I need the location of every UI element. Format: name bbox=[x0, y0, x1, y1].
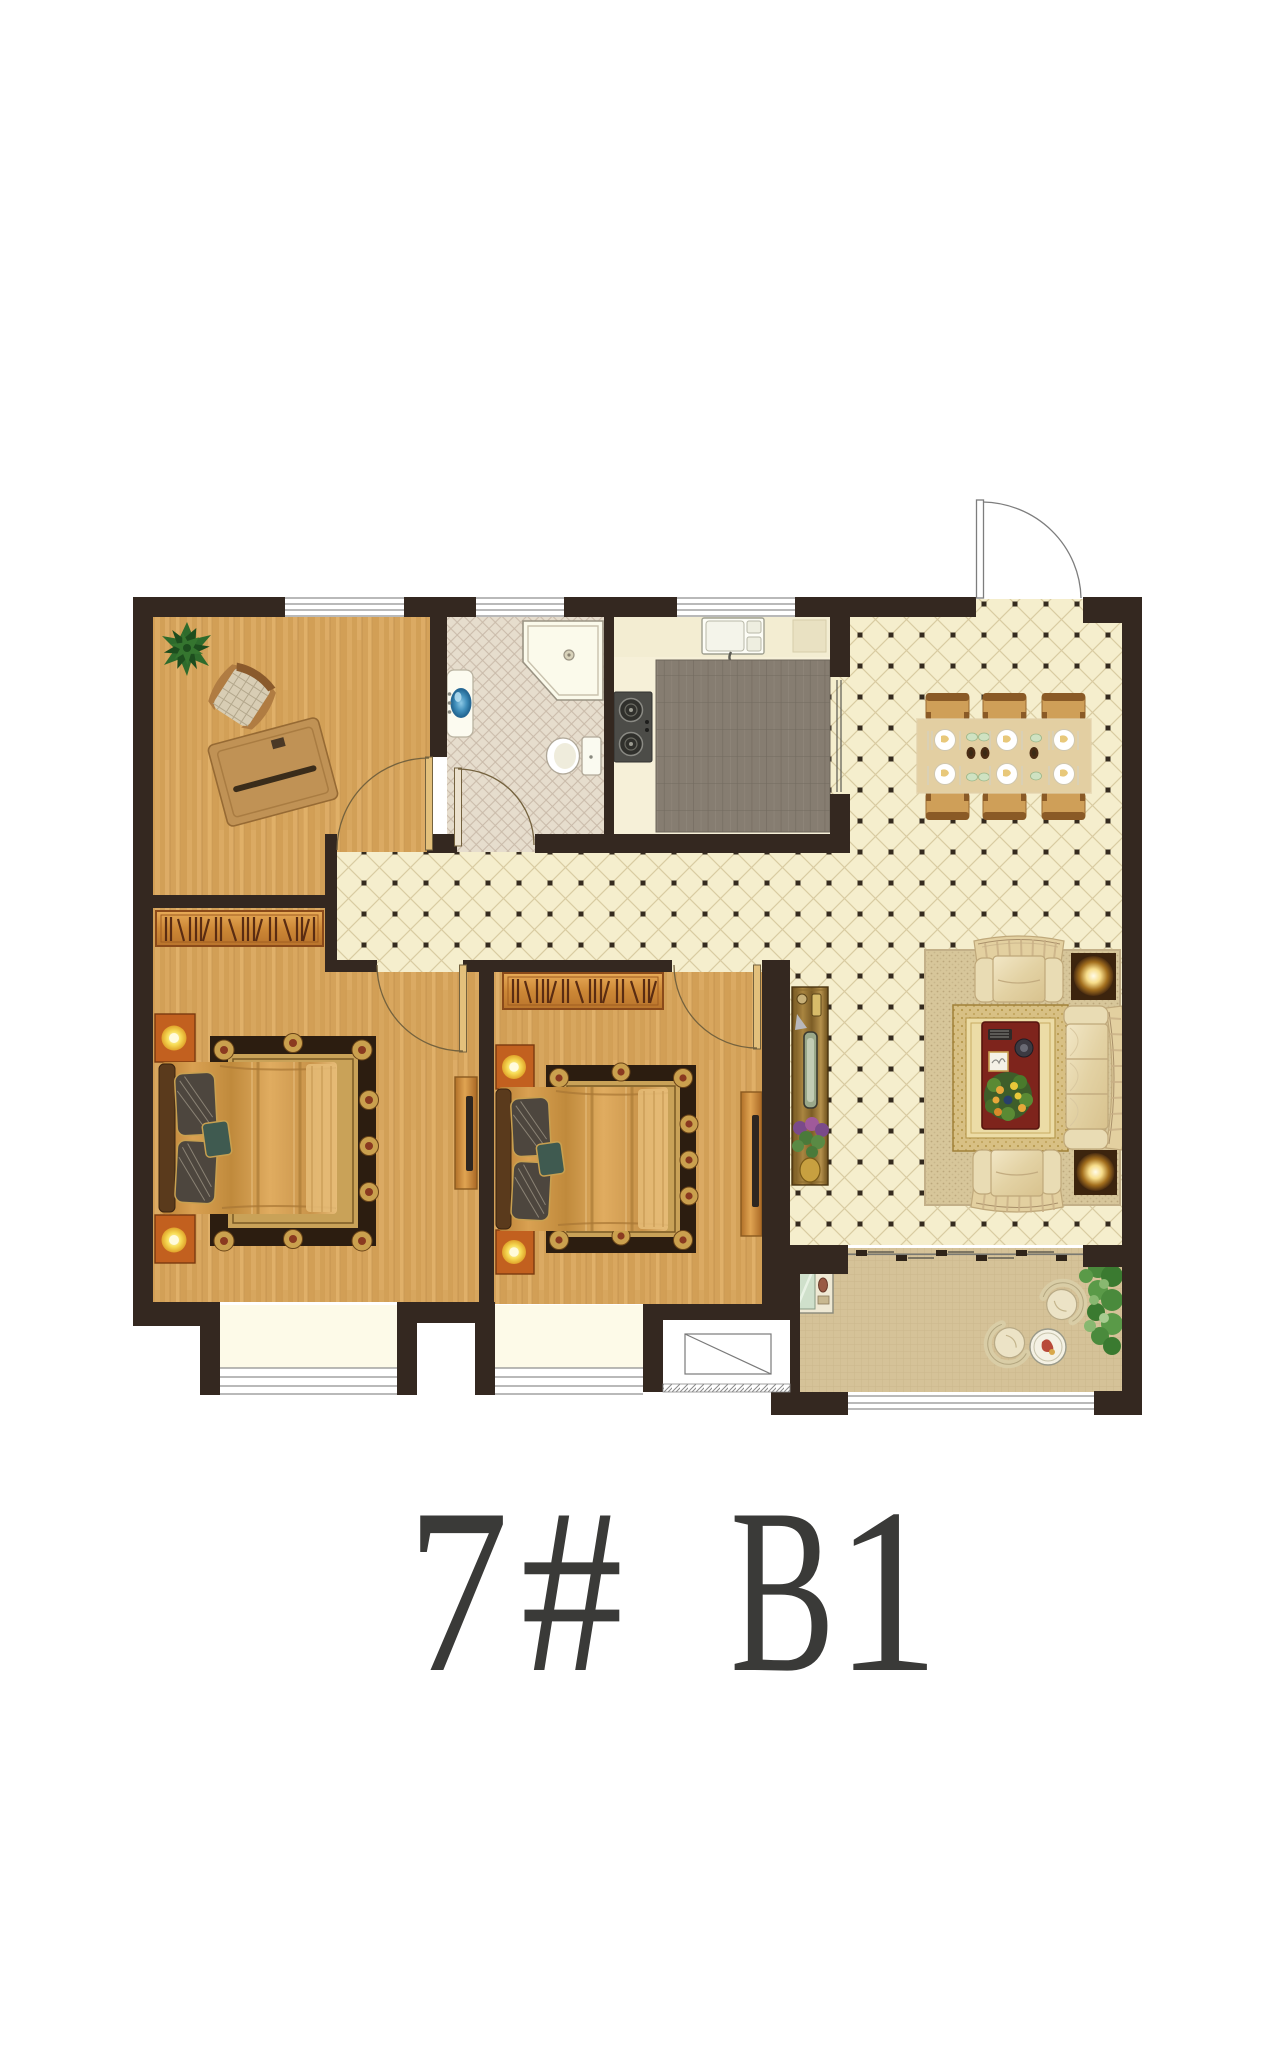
svg-text:1: 1 bbox=[835, 1460, 939, 1722]
svg-text:#: # bbox=[521, 1459, 623, 1721]
svg-text:B: B bbox=[730, 1461, 835, 1722]
svg-text:7: 7 bbox=[407, 1459, 509, 1721]
